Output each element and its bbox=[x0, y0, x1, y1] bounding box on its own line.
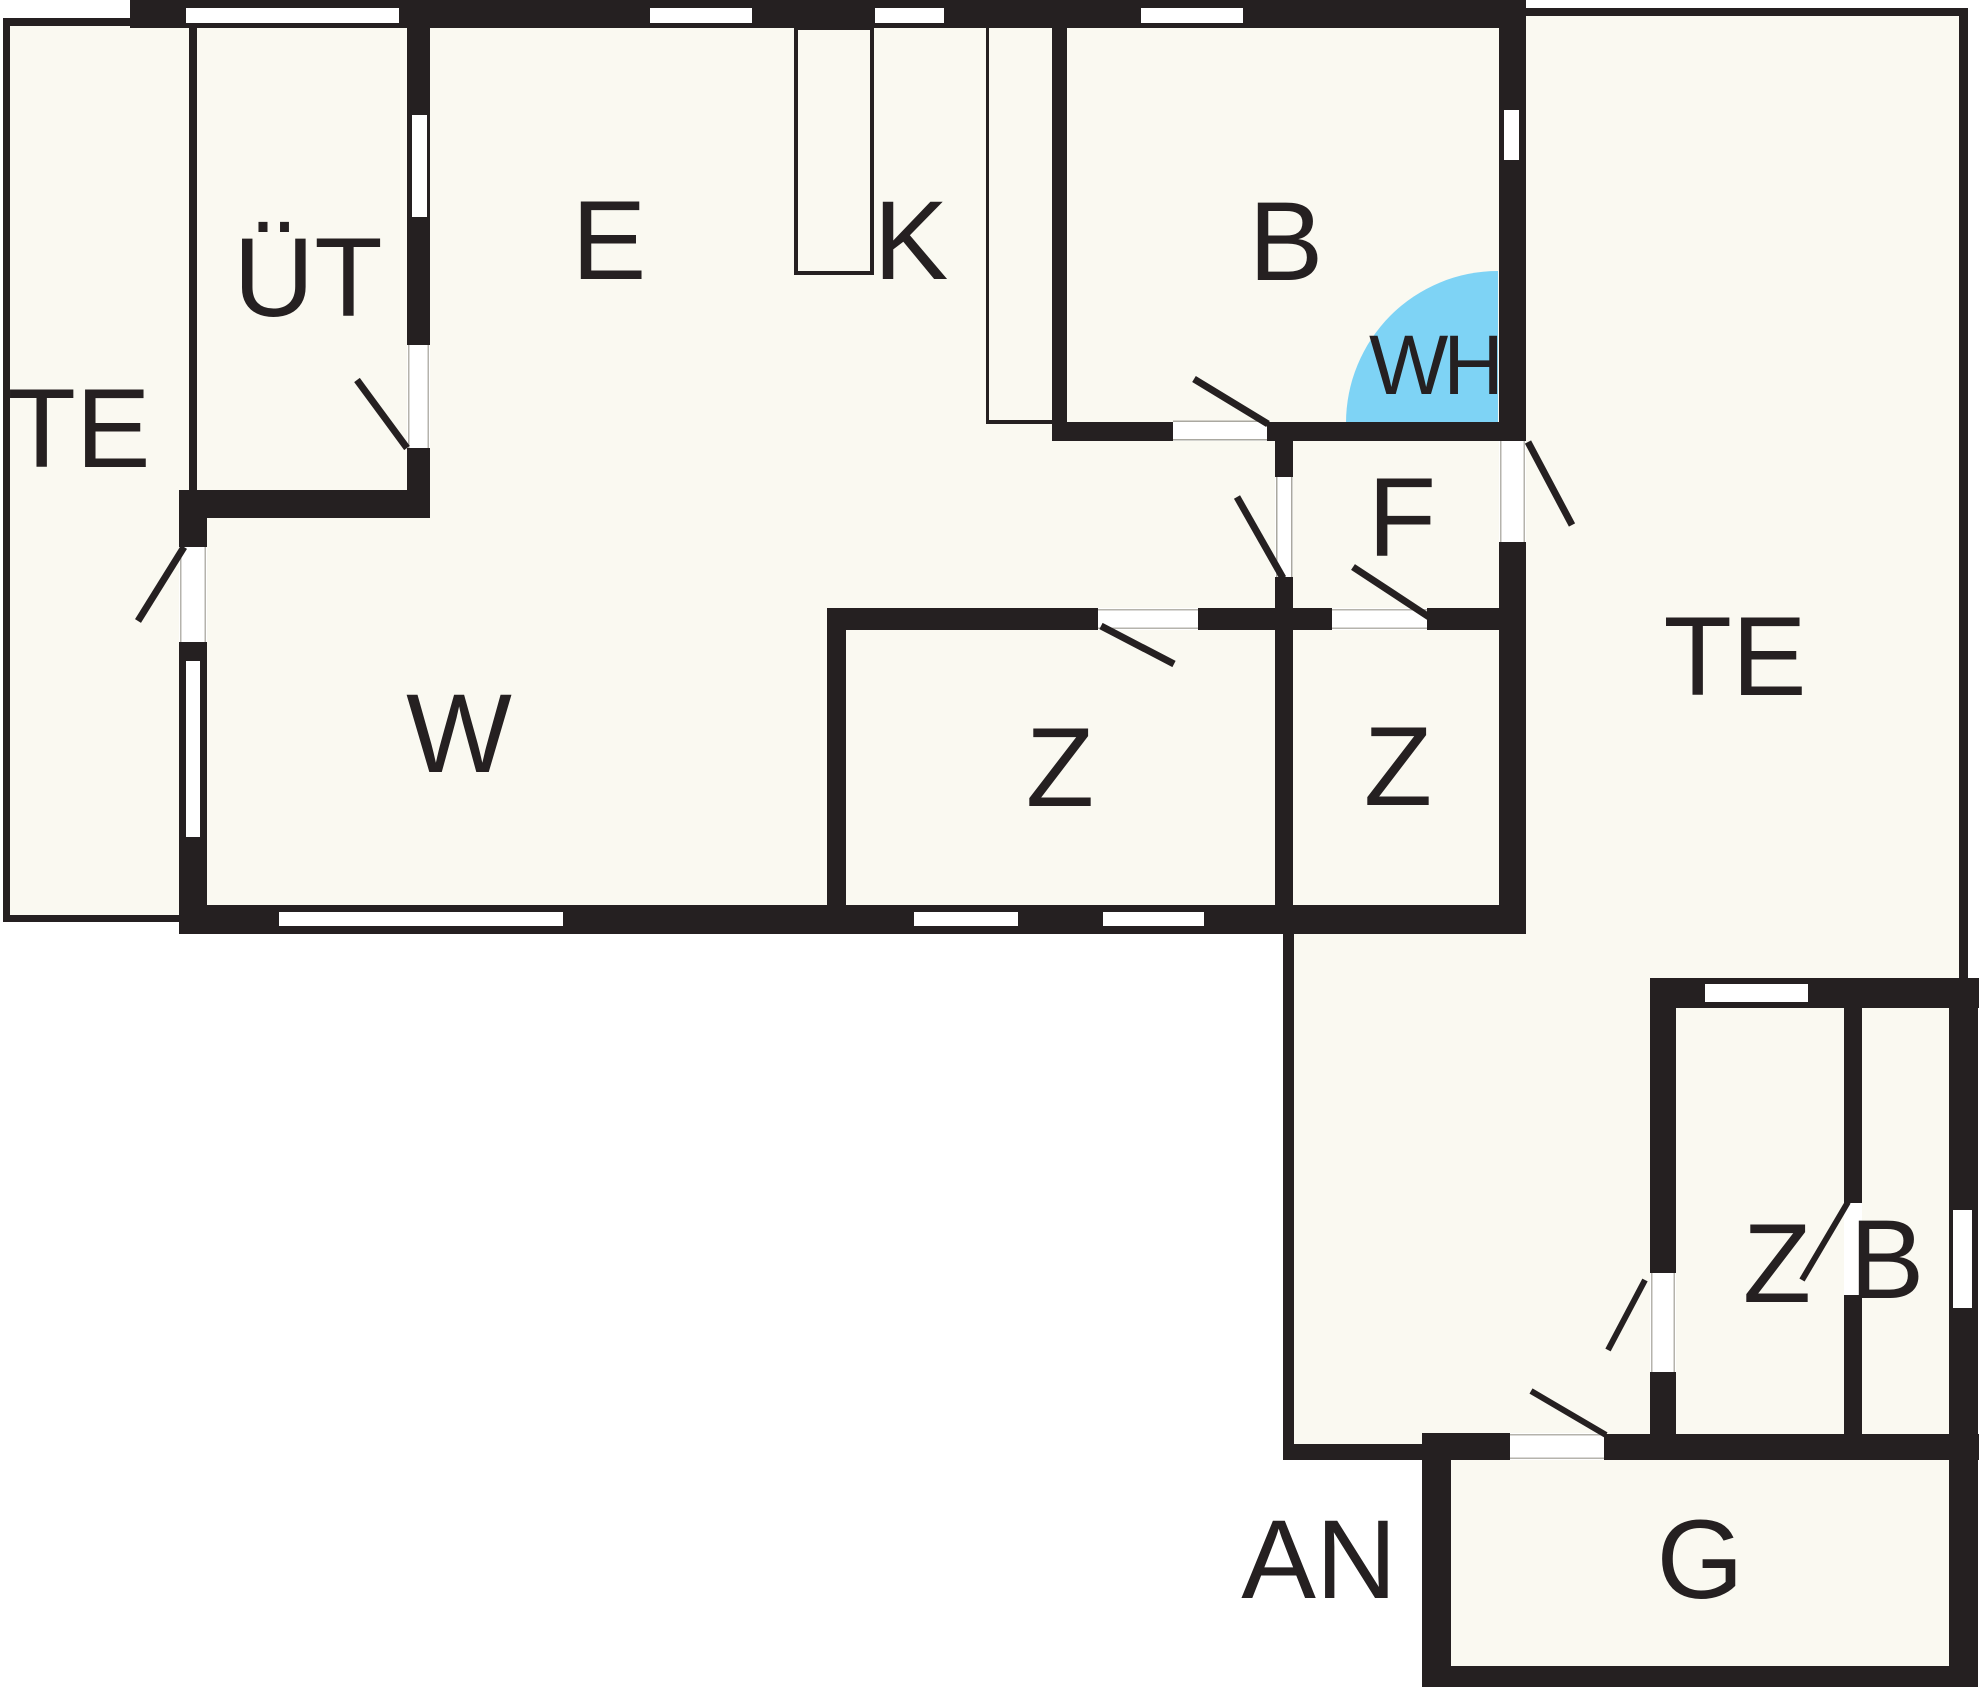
svg-text:WH: WH bbox=[1369, 318, 1499, 412]
svg-text:ÜT: ÜT bbox=[233, 215, 382, 340]
svg-text:F: F bbox=[1368, 455, 1436, 580]
svg-text:TE: TE bbox=[7, 366, 150, 491]
svg-text:AN: AN bbox=[1241, 1497, 1397, 1622]
svg-text:TE: TE bbox=[1663, 594, 1806, 719]
svg-text:Z: Z bbox=[1743, 1201, 1811, 1326]
svg-text:W: W bbox=[406, 671, 512, 796]
svg-text:B: B bbox=[1850, 1197, 1925, 1322]
svg-text:G: G bbox=[1656, 1497, 1743, 1622]
svg-text:Z: Z bbox=[1026, 705, 1094, 830]
svg-text:B: B bbox=[1249, 179, 1324, 304]
svg-text:E: E bbox=[572, 178, 647, 303]
svg-text:Z: Z bbox=[1364, 704, 1432, 829]
svg-text:K: K bbox=[874, 178, 949, 303]
